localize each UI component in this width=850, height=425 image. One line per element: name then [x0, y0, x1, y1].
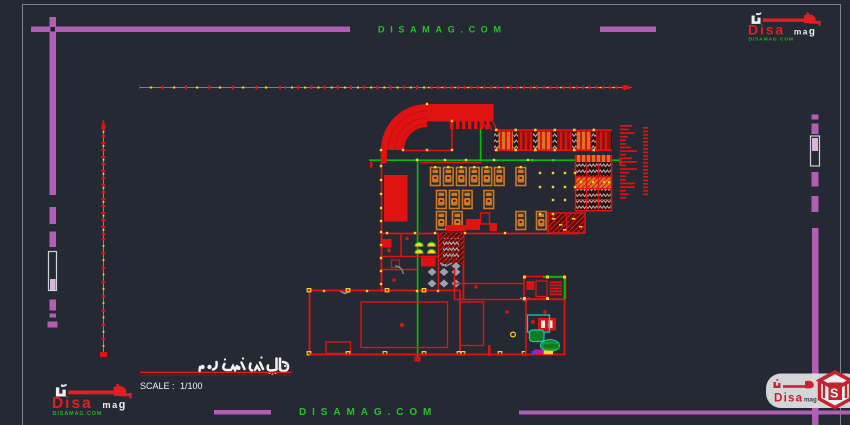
svg-text:DISAMAG.COM: DISAMAG.COM [378, 25, 507, 35]
svg-text:SCALE :: SCALE : [140, 381, 175, 391]
svg-text:Disa: Disa [748, 21, 785, 37]
svg-text:DISAMAG.COM: DISAMAG.COM [749, 37, 794, 43]
svg-text:DISAMAG.COM: DISAMAG.COM [53, 411, 103, 417]
svg-text:Disa: Disa [52, 395, 93, 412]
svg-text:S: S [830, 387, 838, 401]
svg-text:mag: mag [794, 26, 816, 37]
svg-text:1/100: 1/100 [180, 381, 203, 391]
svg-text:DISAMAG.COM: DISAMAG.COM [299, 407, 437, 418]
svg-text:mag: mag [804, 397, 817, 404]
svg-text:Disa: Disa [774, 392, 803, 405]
svg-text:mag: mag [102, 399, 127, 411]
